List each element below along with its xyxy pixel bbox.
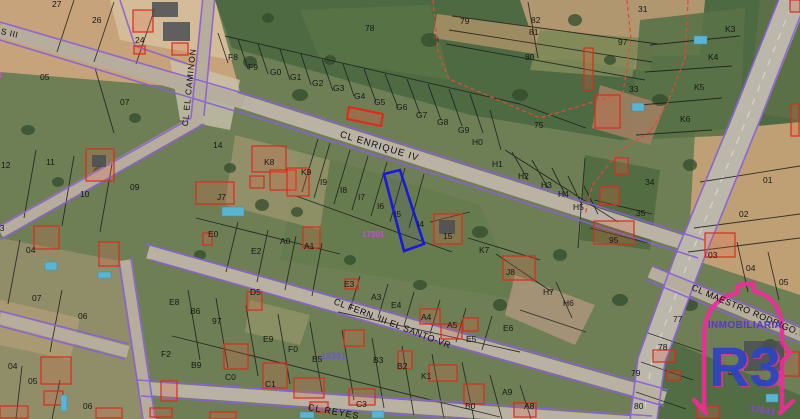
parcel-label: 01 xyxy=(763,176,772,185)
parcel-label: B9 xyxy=(191,361,201,370)
parcel-label: 34 xyxy=(645,178,654,187)
parcel-label: F8 xyxy=(228,53,238,62)
parcel-label: 97 xyxy=(618,38,627,47)
parcel-label: K9 xyxy=(301,168,311,177)
parcel-label: C3 xyxy=(356,400,367,409)
parcel-label: E6 xyxy=(503,324,513,333)
parcel-label: F0 xyxy=(288,345,298,354)
parcel-label: B2 xyxy=(397,362,407,371)
parcel-label: G5 xyxy=(374,98,385,107)
parcel-label: 10 xyxy=(80,190,89,199)
parcel-label: G6 xyxy=(396,103,407,112)
parcel-label: A5 xyxy=(447,321,457,330)
block-label: 17301 xyxy=(362,231,384,239)
parcel-label: A4 xyxy=(421,313,431,322)
parcel-label: H3 xyxy=(541,181,552,190)
parcel-label: K5 xyxy=(694,83,704,92)
street-label: CL ENRIQUE IV xyxy=(339,130,421,163)
parcel-label: K6 xyxy=(680,115,690,124)
parcel-label: H1 xyxy=(492,160,503,169)
parcel-label: K4 xyxy=(708,53,718,62)
parcel-label: 05 xyxy=(40,73,49,82)
parcel-label: D5 xyxy=(250,288,261,297)
parcel-label: A8 xyxy=(524,402,534,411)
parcel-label: 26 xyxy=(92,16,101,25)
parcel-label: E9 xyxy=(263,335,273,344)
parcel-label: B3 xyxy=(373,356,383,365)
parcel-label: 77 xyxy=(673,315,682,324)
parcel-label: 79 xyxy=(631,369,640,378)
watermark-logo: INMOBILIARIA R3 xyxy=(695,278,800,419)
parcel-label: 82 xyxy=(531,16,540,25)
parcel-label: 14 xyxy=(213,141,222,150)
parcel-label: H4 xyxy=(558,190,569,199)
parcel-label: K1 xyxy=(421,372,431,381)
parcel-label: E3 xyxy=(344,280,354,289)
parcel-label: H0 xyxy=(472,138,483,147)
parcel-label: K8 xyxy=(264,158,274,167)
parcel-label: A3 xyxy=(371,293,381,302)
parcel-label: 75 xyxy=(534,121,543,130)
block-label: 18301 xyxy=(321,352,346,361)
parcel-label: 78 xyxy=(365,24,374,33)
parcel-label: 04 xyxy=(26,246,35,255)
parcel-label: E0 xyxy=(208,230,218,239)
parcel-label: 07 xyxy=(120,98,129,107)
parcel-label: 35 xyxy=(636,209,645,218)
parcel-label: 02 xyxy=(739,210,748,219)
parcel-label: I4 xyxy=(417,220,424,229)
parcel-label: 24 xyxy=(135,36,144,45)
parcel-label: E4 xyxy=(391,301,401,310)
parcel-label: H5 xyxy=(573,203,584,212)
parcel-label: J7 xyxy=(217,193,226,202)
parcel-label: C1 xyxy=(265,380,276,389)
parcel-label: 78 xyxy=(658,343,667,352)
parcel-label: G1 xyxy=(290,73,301,82)
street-label: S III xyxy=(0,27,19,39)
logo-tagline: INMOBILIARIA xyxy=(701,320,789,331)
parcel-label: I5 xyxy=(394,210,401,219)
parcel-label: 33 xyxy=(629,85,638,94)
logo-brand: R3 xyxy=(701,334,789,399)
parcel-label: 09 xyxy=(130,183,139,192)
parcel-label: E2 xyxy=(251,247,261,256)
parcel-label: 27 xyxy=(52,0,61,9)
parcel-label: A0 xyxy=(280,237,290,246)
parcel-label: A1 xyxy=(304,242,314,251)
parcel-label: 06 xyxy=(78,312,87,321)
parcel-label: 03 xyxy=(0,224,4,233)
parcel-label: G9 xyxy=(458,126,469,135)
parcel-label: G4 xyxy=(354,92,365,101)
parcel-label: K3 xyxy=(725,25,735,34)
parcel-label: G3 xyxy=(333,84,344,93)
parcel-label: F2 xyxy=(161,350,171,359)
parcel-label: H7 xyxy=(543,288,554,297)
parcel-label: H6 xyxy=(563,299,574,308)
parcel-label: G8 xyxy=(437,118,448,127)
parcel-label: 04 xyxy=(8,362,17,371)
parcel-label: E5 xyxy=(466,335,476,344)
parcel-label: G2 xyxy=(312,79,323,88)
cadastral-map[interactable]: 27262405071211100903040706040506F8F9G0G1… xyxy=(0,0,800,419)
parcel-label: A9 xyxy=(502,388,512,397)
parcel-label: I9 xyxy=(320,178,327,187)
parcel-label: 80 xyxy=(634,402,643,411)
parcel-label: I6 xyxy=(377,202,384,211)
parcel-label: K7 xyxy=(479,246,489,255)
parcel-label: 95 xyxy=(609,236,618,245)
parcel-label: 03 xyxy=(708,251,717,260)
parcel-label: 07 xyxy=(32,294,41,303)
parcel-label: I7 xyxy=(358,193,365,202)
parcel-label: 06 xyxy=(83,402,92,411)
parcel-label: 80 xyxy=(525,53,534,62)
parcel-label: J8 xyxy=(506,268,515,277)
parcel-label: 12 xyxy=(1,161,10,170)
parcel-label: 79 xyxy=(460,17,469,26)
parcel-label: G7 xyxy=(416,111,427,120)
parcel-label: F9 xyxy=(248,63,258,72)
parcel-label: 81 xyxy=(529,28,538,37)
parcel-label: B0 xyxy=(465,402,475,411)
block-label: 14 xyxy=(0,72,2,80)
parcel-label: G0 xyxy=(270,68,281,77)
parcel-label: 31 xyxy=(638,5,647,14)
street-label: CL REYES xyxy=(307,403,360,419)
parcel-label: 11 xyxy=(46,158,55,167)
parcel-label: B6 xyxy=(190,307,200,316)
parcel-label: 05 xyxy=(28,377,37,386)
parcel-label: 97 xyxy=(212,317,221,326)
parcel-label: 04 xyxy=(746,264,755,273)
street-label: CL EL CAMINON xyxy=(181,48,198,127)
parcel-label: 15 xyxy=(443,232,452,241)
parcel-label: E8 xyxy=(169,298,179,307)
parcel-label: H2 xyxy=(518,172,529,181)
map-labels-layer: 27262405071211100903040706040506F8F9G0G1… xyxy=(0,0,800,419)
parcel-label: I8 xyxy=(340,186,347,195)
parcel-label: C0 xyxy=(225,373,236,382)
